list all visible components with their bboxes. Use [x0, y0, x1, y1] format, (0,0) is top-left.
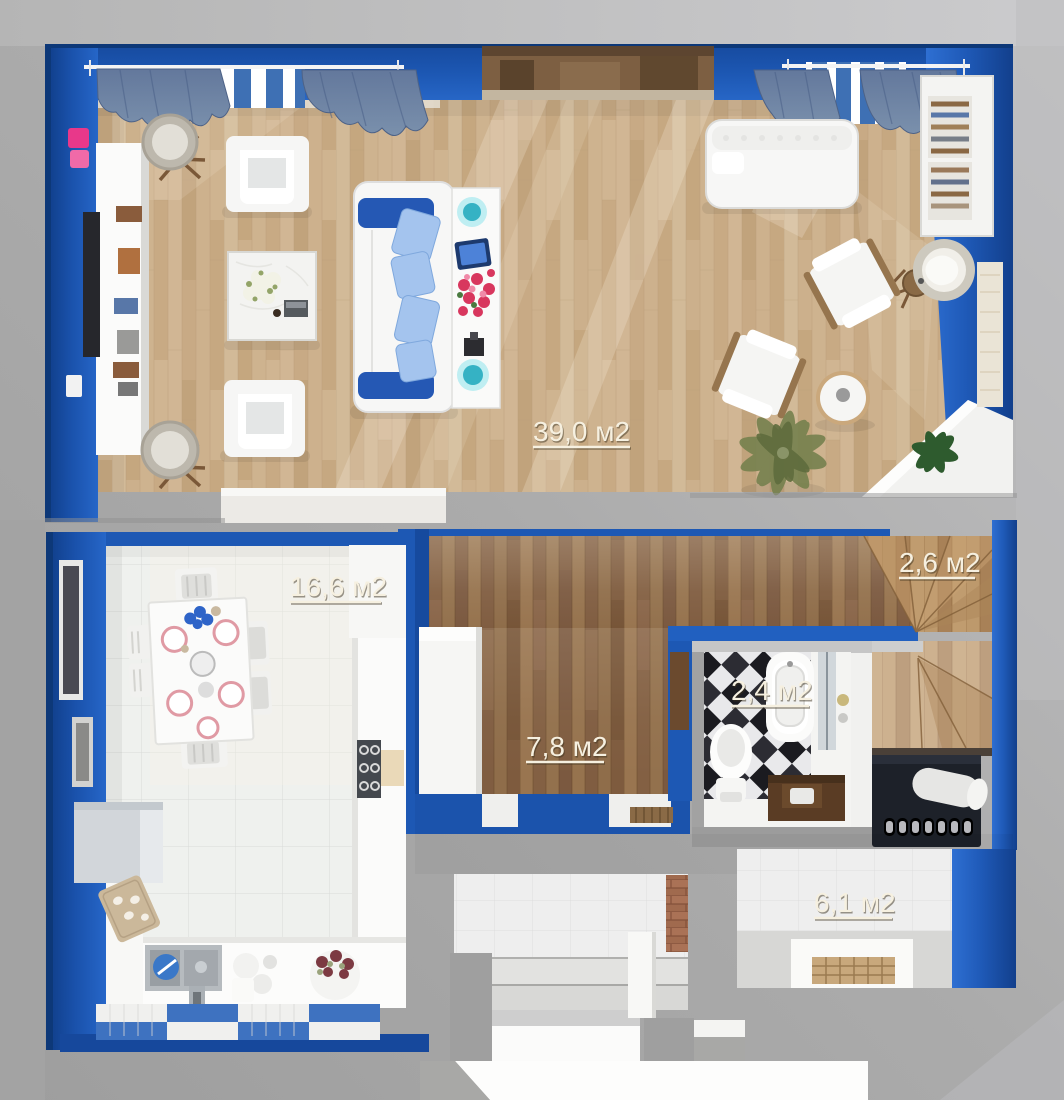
svg-text:6,1 м2: 6,1 м2 — [814, 887, 896, 918]
svg-text:7,8 м2: 7,8 м2 — [526, 731, 608, 762]
svg-text:39,0 м2: 39,0 м2 — [533, 416, 630, 447]
svg-text:16,6 м2: 16,6 м2 — [290, 571, 387, 602]
svg-text:2,6 м2: 2,6 м2 — [899, 547, 981, 578]
svg-text:2,4 м2: 2,4 м2 — [731, 675, 813, 706]
